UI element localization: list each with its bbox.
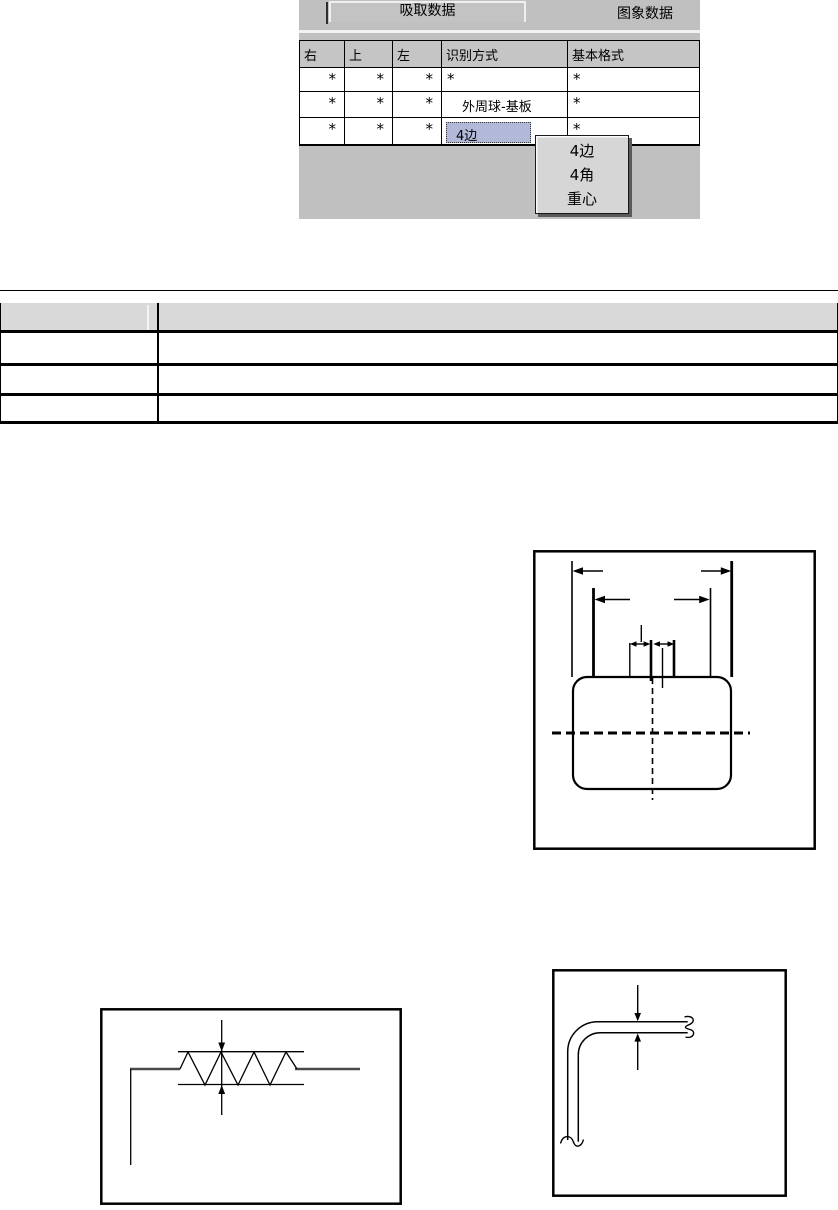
tube-outer-line	[568, 1022, 688, 1140]
figure-component-dimension-diagram	[533, 550, 816, 850]
break-symbol-bottom	[561, 1137, 584, 1147]
zigzag-wave	[180, 1052, 297, 1085]
selected-cell-editor[interactable]: 4边	[446, 122, 531, 143]
figure-border	[101, 1009, 400, 1203]
grid-cell[interactable]: *	[345, 68, 393, 92]
amplitude-dimension	[218, 1020, 225, 1115]
manual-page: 吸取数据 图象数据 右 上 左 识别方式 基本格式 * * * * * * * …	[0, 0, 838, 1210]
column-header-basic-format[interactable]: 基本格式	[568, 41, 699, 68]
dropdown-option[interactable]: 4边	[536, 139, 628, 163]
summary-header-divider-highlight	[147, 305, 149, 330]
thickness-dimension	[634, 985, 641, 1070]
grid-cell[interactable]: *	[568, 92, 699, 118]
grid-cell[interactable]: *	[345, 92, 393, 118]
grid-cell[interactable]: 外周球-基板	[442, 92, 568, 118]
center-offset-dimension	[630, 625, 674, 688]
grid-cell[interactable]: *	[300, 118, 345, 145]
ui-screenshot-panel: 吸取数据 图象数据 右 上 左 识别方式 基本格式 * * * * * * * …	[299, 0, 700, 219]
tab-image-data[interactable]: 图象数据	[617, 3, 697, 23]
grid-cell[interactable]: *	[393, 118, 442, 145]
grid-cell[interactable]: *	[393, 68, 442, 92]
summary-row	[1, 396, 837, 424]
figure-border	[534, 551, 814, 848]
break-symbol-right	[685, 1016, 694, 1037]
column-header-up[interactable]: 上	[345, 41, 393, 68]
tab-absorb-data[interactable]: 吸取数据	[329, 1, 526, 22]
summary-row	[1, 333, 837, 366]
dropdown-option[interactable]: 重心	[536, 187, 628, 211]
grid-cell[interactable]: *	[568, 68, 699, 92]
summary-row	[1, 366, 837, 396]
divider-line	[0, 290, 838, 291]
column-header-recognition-mode[interactable]: 识别方式	[442, 41, 568, 68]
recognition-mode-dropdown: 4边 4角 重心	[535, 135, 629, 214]
tube-inner-line	[578, 1033, 687, 1142]
tab-separator-mark	[326, 2, 328, 24]
figure-border	[553, 970, 785, 1195]
dropdown-option[interactable]: 4角	[536, 163, 628, 187]
figure-lead-zigzag-diagram	[100, 1008, 402, 1205]
grid-cell[interactable]: *	[345, 118, 393, 145]
summary-table	[0, 303, 838, 424]
summary-col-divider	[157, 303, 159, 424]
grid-cell[interactable]: *	[300, 68, 345, 92]
summary-header-row	[1, 303, 837, 333]
column-header-left[interactable]: 左	[393, 41, 442, 68]
figure-lead-bend-diagram	[552, 969, 787, 1197]
grid-cell[interactable]: *	[442, 68, 568, 92]
grid-cell[interactable]: *	[393, 92, 442, 118]
column-header-right[interactable]: 右	[300, 41, 345, 68]
grid-cell[interactable]: *	[300, 92, 345, 118]
panel-highlight-line	[299, 30, 700, 33]
